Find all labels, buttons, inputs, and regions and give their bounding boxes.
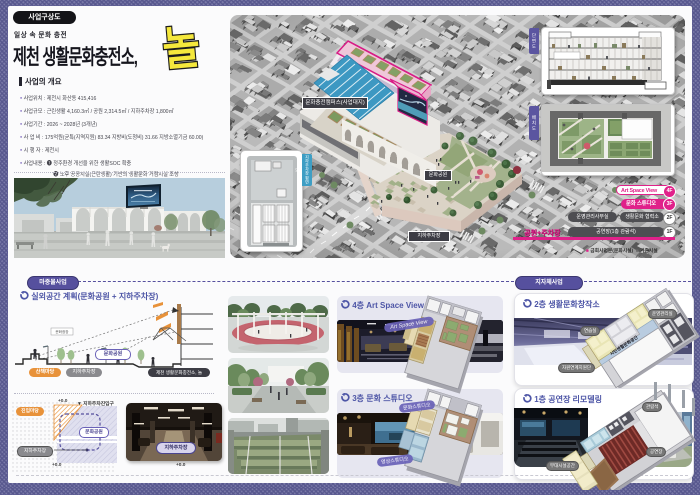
svg-text:놀: 놀 [161, 22, 203, 76]
